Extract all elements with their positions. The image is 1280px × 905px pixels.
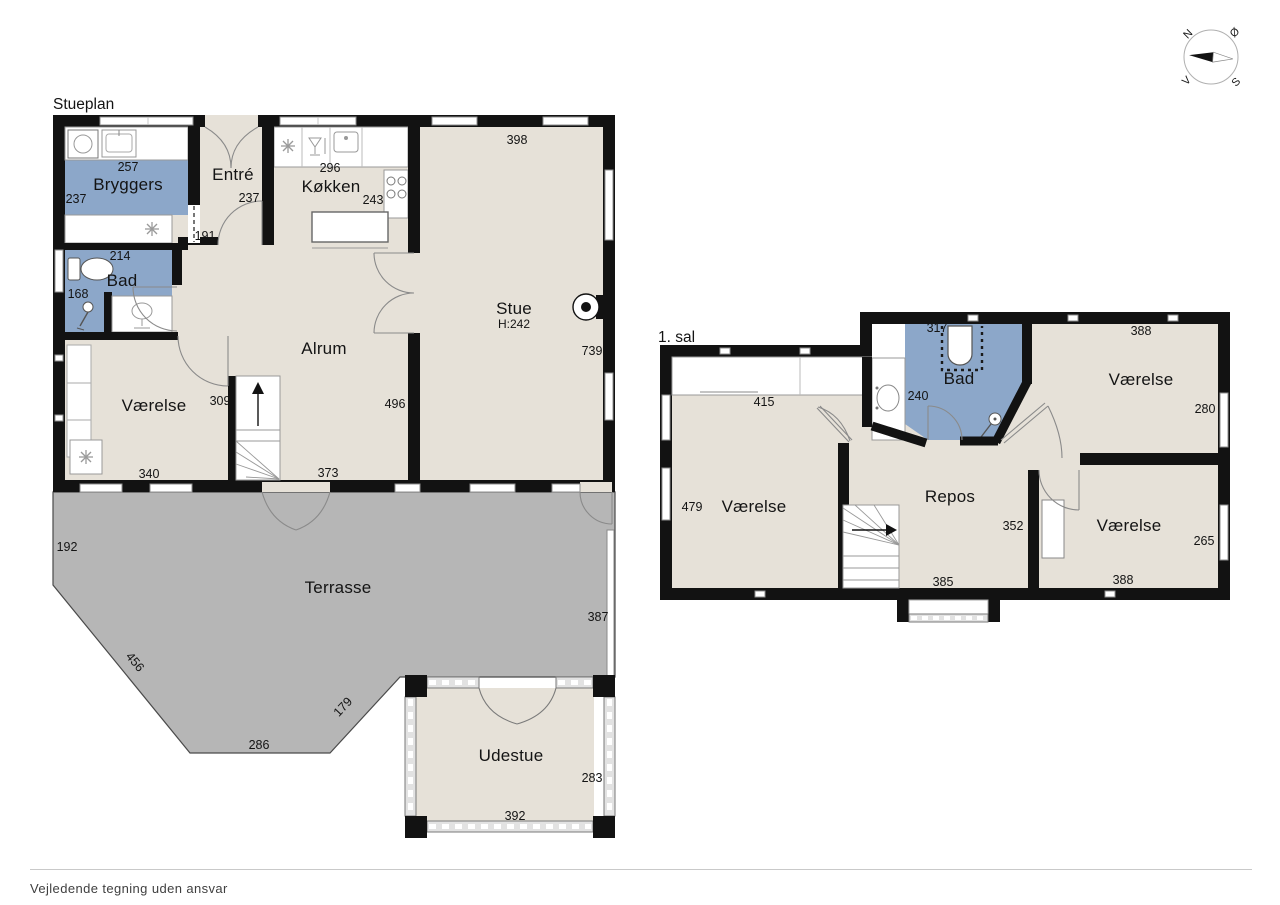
dim-varelse-width: 340 <box>139 467 160 481</box>
footer-divider <box>30 869 1252 870</box>
footer-disclaimer: Vejledende tegning uden ansvar <box>30 881 228 896</box>
dim-varelse-depth: 309 <box>210 394 231 408</box>
room-label-bryggers: Bryggers <box>93 175 163 195</box>
room-label-entre: Entré <box>212 165 254 185</box>
room-label-udestue: Udestue <box>479 746 544 766</box>
dim-stue-depth: 739 <box>582 344 603 358</box>
stairs-ground <box>236 376 280 480</box>
dim-varelse-se-depth: 265 <box>1194 534 1215 548</box>
dim-kokken-width: 296 <box>320 161 341 175</box>
room-label-kokken: Køkken <box>302 177 361 197</box>
floorplan-page: N Ø S V Stueplan 257 Bryggers 237 Entré … <box>0 0 1280 905</box>
balcony <box>897 600 1000 622</box>
dim-stue-ceiling: H:242 <box>498 317 530 331</box>
dim-varelse-ne-width: 388 <box>1131 324 1152 338</box>
closet <box>1042 500 1064 558</box>
appliance-icon <box>281 139 295 153</box>
shower-icon <box>83 302 93 312</box>
bathtub-icon <box>948 326 972 365</box>
ground-floor-title: Stueplan <box>53 96 114 114</box>
room-label-varelse-left: Værelse <box>722 497 787 517</box>
dim-terrasse-bottom: 286 <box>249 738 270 752</box>
appliance-icon <box>145 222 159 236</box>
room-label-alrum: Alrum <box>301 339 346 359</box>
dim-varelse-left-depth: 479 <box>682 500 703 514</box>
room-label-varelse-ground: Værelse <box>122 396 187 416</box>
dim-alrum-width: 373 <box>318 466 339 480</box>
kitchen-island <box>312 212 388 242</box>
floorplan-drawing: N Ø S V <box>0 0 1280 905</box>
dim-bad-width: 214 <box>110 249 131 263</box>
dim-terrasse-left: 192 <box>57 540 78 554</box>
room-label-repos: Repos <box>925 487 975 507</box>
sink-icon <box>877 385 899 411</box>
dim-kokken-depth: 243 <box>363 193 384 207</box>
dim-stue-width: 398 <box>507 133 528 147</box>
dim-varelse-left-width: 415 <box>754 395 775 409</box>
dim-entre-depth: 237 <box>239 191 260 205</box>
dim-repos-closet: 352 <box>1003 519 1024 533</box>
stairs-first <box>843 505 899 588</box>
compass-s: S <box>1230 76 1244 90</box>
dim-terrasse-right: 387 <box>588 610 609 624</box>
dim-bryggers-depth: 237 <box>66 192 87 206</box>
closet-strip <box>672 357 872 395</box>
first-floor-title: 1. sal <box>658 329 695 347</box>
room-label-bad-first: Bad <box>944 369 975 389</box>
washing-machine-icon <box>68 130 98 158</box>
dim-bad-first-width: 317 <box>927 321 948 335</box>
dim-repos-width: 385 <box>933 575 954 589</box>
room-label-stue: Stue <box>496 299 532 319</box>
room-label-bad: Bad <box>107 271 138 291</box>
room-label-varelse-ne: Værelse <box>1109 370 1174 390</box>
dim-udestue-width: 392 <box>505 809 526 823</box>
dim-alrum-wall: 496 <box>385 397 406 411</box>
dim-udestue-depth: 283 <box>582 771 603 785</box>
dim-entre-width: 191 <box>195 229 216 243</box>
room-label-terrasse: Terrasse <box>305 578 372 598</box>
dim-bad-first-depth: 240 <box>908 389 929 403</box>
compass-rose: N Ø S V <box>1157 3 1268 114</box>
dim-varelse-se-width: 388 <box>1113 573 1134 587</box>
dim-bryggers-width: 257 <box>118 160 139 174</box>
terrace-railing <box>607 530 614 676</box>
dim-varelse-ne-depth: 280 <box>1195 402 1216 416</box>
toilet-icon <box>68 258 80 280</box>
wood-stove-icon <box>573 294 599 320</box>
dim-bad-depth: 168 <box>68 287 89 301</box>
appliance-icon <box>79 450 93 464</box>
sink-icon <box>132 303 152 319</box>
room-label-varelse-se: Værelse <box>1097 516 1162 536</box>
